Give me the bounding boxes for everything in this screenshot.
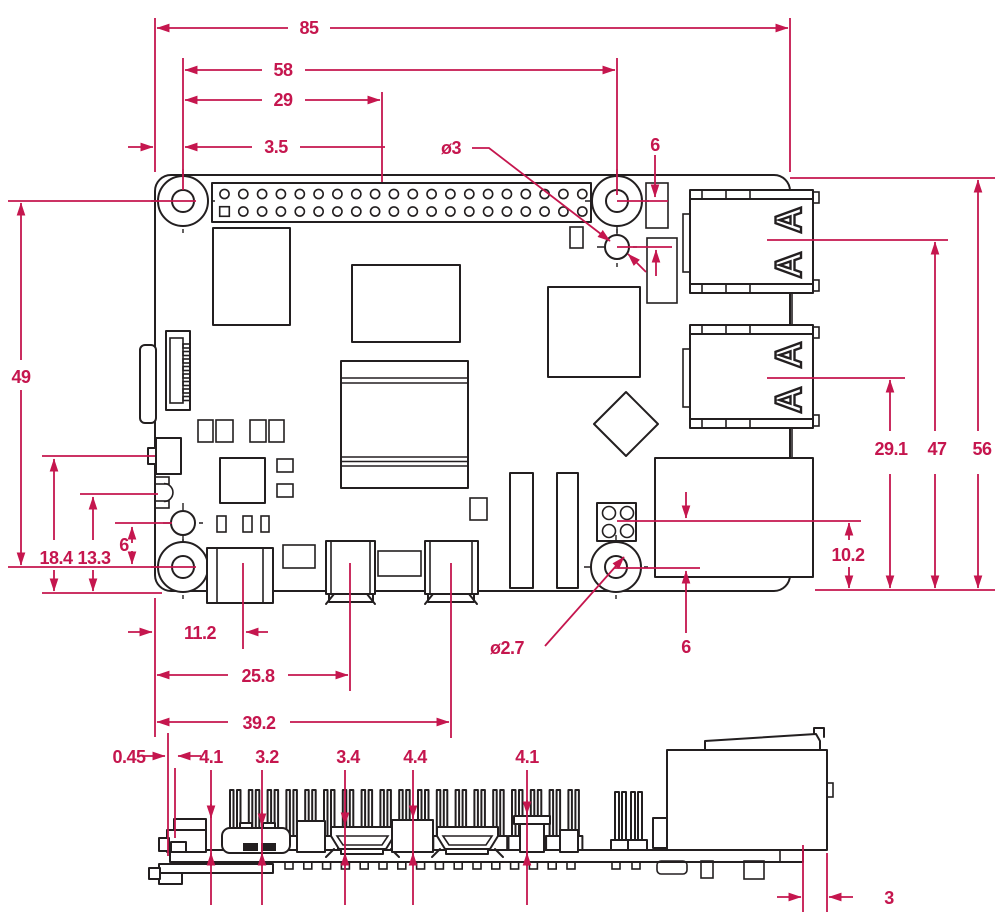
dim-hdmi1-center: 39.2 [157, 713, 449, 733]
chip-b [352, 265, 460, 342]
component-k [378, 551, 421, 576]
gpio-pin1-square-pad [220, 207, 230, 217]
dim-board-height: 56 [972, 180, 992, 588]
tall-component-1 [510, 473, 533, 588]
dim-label-56: 56 [972, 439, 992, 459]
dim-label-3: 3 [884, 888, 894, 908]
component-side-1 [297, 821, 325, 852]
dimension-drawing-page: A A [0, 0, 1000, 918]
dim-label-29: 29 [273, 90, 293, 110]
display-connector [166, 331, 190, 410]
dim-label-58: 58 [273, 60, 293, 80]
dim-label-dia2-7: ø2.7 [490, 638, 525, 658]
dim-label-18-4: 18.4 [39, 548, 73, 568]
dim-label-3-2: 3.2 [255, 747, 279, 767]
dim-comp-b: 13.3 [77, 494, 158, 591]
dim-label-10-2: 10.2 [831, 545, 865, 565]
ethernet-jack [655, 458, 813, 577]
left-connector-side [159, 819, 206, 852]
dim-gpio-center: 29 [185, 90, 380, 110]
dim-label-0-45: 0.45 [112, 747, 146, 767]
dim-label-6-left: 6 [119, 535, 129, 555]
dim-label-13-3: 13.3 [77, 548, 111, 568]
chip-c [548, 287, 640, 377]
chip-shield [341, 361, 468, 488]
poe-pins-side [611, 792, 647, 852]
dim-label-6-bottomright: 6 [681, 637, 691, 657]
ethernet-side [667, 728, 833, 850]
usb-port-stack-upper [683, 190, 819, 293]
dim-usb-lower-center: 29.1 [874, 380, 908, 588]
edge-component-b [155, 477, 173, 508]
dim-label-4-4: 4.4 [403, 747, 427, 767]
dim-label-6-topright: 6 [650, 135, 660, 155]
tall-component-2 [557, 473, 578, 588]
dim-label-3-4: 3.4 [336, 747, 360, 767]
dim-label-39-2: 39.2 [242, 713, 276, 733]
component-side-3 [653, 818, 667, 848]
dim-label-25-8: 25.8 [241, 666, 275, 686]
dim-label-49: 49 [11, 367, 31, 387]
dim-label-dia3: ø3 [441, 138, 461, 158]
dim-label-4-1a: 4.1 [199, 747, 223, 767]
dim-label-85: 85 [299, 18, 319, 38]
dim-usbc-center: 11.2 [128, 623, 268, 643]
dim-hole-span-y: 49 [8, 201, 196, 567]
gpio-header [212, 183, 591, 222]
dim-label-4-1b: 4.1 [515, 747, 539, 767]
component-near-hole-1 [646, 183, 668, 228]
chip-d [220, 458, 265, 503]
usb-port-stack-lower [683, 325, 819, 428]
side-view [149, 728, 833, 884]
component-j [283, 545, 315, 568]
dim-hdmi0-center: 25.8 [157, 666, 348, 686]
diamond-component [594, 392, 658, 456]
dim-usb-upper-center: 47 [927, 242, 947, 588]
dim-label-29-1: 29.1 [874, 439, 908, 459]
top-view [140, 169, 819, 604]
dim-label-11-2: 11.2 [184, 623, 217, 643]
sd-card [140, 345, 156, 423]
dim-comp-a: 18.4 [39, 456, 162, 593]
usb-c-power [207, 548, 273, 603]
small-component [570, 227, 583, 248]
dim-hole-span-x: 58 [185, 60, 615, 80]
dim-eth-center: 10.2 [831, 523, 865, 588]
usb-c-side [222, 823, 290, 853]
aux-hole-left [171, 511, 195, 535]
dim-hole-inset: 3.5 [128, 137, 385, 157]
dim-label-3-5: 3.5 [264, 137, 288, 157]
dim-label-47: 47 [927, 439, 947, 459]
chip-a [213, 228, 290, 325]
bottom-pads [285, 861, 764, 879]
mounting-holes [151, 169, 649, 599]
dim-board-width: 85 [157, 18, 788, 38]
board-dimension-drawing: A A [0, 0, 1000, 918]
